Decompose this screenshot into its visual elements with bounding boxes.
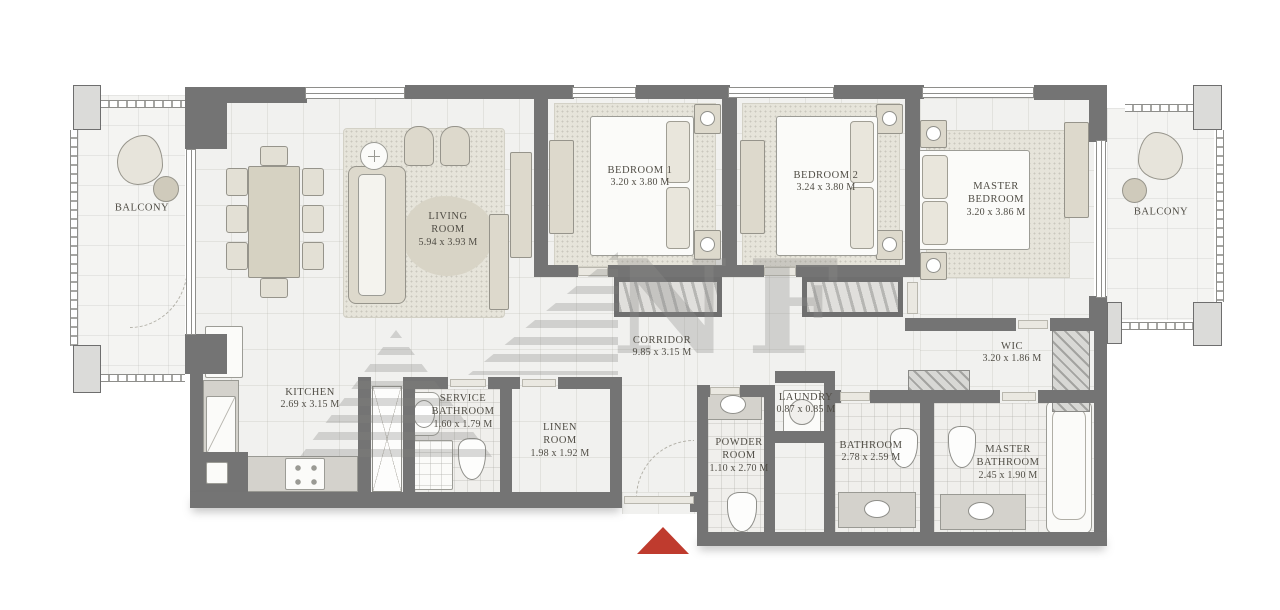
- room-dimensions: 1.60 x 1.79 M: [434, 419, 493, 432]
- wall-segment: [920, 390, 934, 532]
- room-label-living-room: LIVING ROOM 5.94 x 3.93 M: [419, 210, 478, 250]
- tv-cabinet: [510, 152, 532, 258]
- console-cabinet: [489, 214, 509, 310]
- lamp-icon: [882, 111, 897, 126]
- dining-table: [248, 166, 300, 278]
- wardrobe: [549, 140, 574, 234]
- balcony-railing: [1216, 130, 1224, 302]
- room-label-balcony-right: BALCONY: [1134, 205, 1188, 218]
- wall-segment: [185, 87, 307, 103]
- window: [728, 87, 834, 98]
- room-dimensions: 3.20 x 3.80 M: [611, 177, 670, 190]
- wall-segment: [1094, 324, 1107, 546]
- lounge-chair: [117, 135, 163, 185]
- room-label-master-bedroom: MASTER BEDROOM 3.20 x 3.86 M: [965, 180, 1027, 220]
- room-name: KITCHEN: [285, 386, 335, 399]
- room-dimensions: 2.78 x 2.59 M: [842, 452, 901, 465]
- room-name: MASTER BEDROOM: [965, 180, 1027, 207]
- lamp-icon: [882, 237, 897, 252]
- room-label-laundry: LAUNDRY 0.87 x 0.85 M: [777, 391, 836, 417]
- window: [305, 87, 405, 99]
- wall-segment: [697, 385, 710, 397]
- floor-plan: NF BALCONY LIVING ROOM 5.94 x 3.93 M BED…: [0, 0, 1280, 610]
- bathtub-inner: [1052, 408, 1086, 520]
- room-name: LAUNDRY: [779, 391, 833, 404]
- wall-segment: [697, 385, 708, 532]
- wall-segment: [534, 97, 548, 277]
- balcony-railing: [1122, 322, 1193, 330]
- room-dimensions: 1.98 x 1.92 M: [531, 448, 590, 461]
- wall-segment: [934, 390, 1000, 403]
- door-threshold: [1002, 392, 1036, 401]
- room-label-master-bathroom: MASTER BATHROOM 2.45 x 1.90 M: [973, 443, 1043, 483]
- room-name: BEDROOM 1: [605, 164, 675, 177]
- structural-column: [73, 345, 101, 393]
- room-label-linen-room: LINEN ROOM 1.98 x 1.92 M: [531, 421, 590, 461]
- lamp-icon: [926, 126, 941, 141]
- wall-shaft: [206, 462, 228, 484]
- table-lamp-icon: [368, 150, 380, 162]
- stove: [285, 458, 325, 490]
- balcony-railing: [101, 100, 185, 108]
- wall-segment: [636, 85, 730, 99]
- wall-segment: [500, 377, 512, 492]
- room-name: WIC: [1001, 340, 1023, 353]
- side-table: [1122, 178, 1147, 203]
- wardrobe: [740, 140, 765, 234]
- room-dimensions: 3.24 x 3.80 M: [797, 182, 856, 195]
- sofa-cushions: [358, 174, 386, 296]
- dining-chair: [302, 168, 324, 196]
- sink-basin: [720, 395, 746, 414]
- room-name: MASTER BATHROOM: [973, 443, 1043, 470]
- dining-chair: [260, 278, 288, 298]
- room-name: LINEN ROOM: [537, 421, 583, 448]
- wall-segment: [534, 265, 578, 277]
- room-label-bedroom-2: BEDROOM 2 3.24 x 3.80 M: [791, 169, 861, 195]
- pillow: [922, 155, 948, 199]
- dining-chair: [226, 242, 248, 270]
- wall-segment: [697, 532, 1107, 546]
- sink-basin: [864, 500, 890, 518]
- armchair: [440, 126, 470, 166]
- room-name: BALCONY: [115, 201, 169, 214]
- door-threshold: [522, 379, 556, 387]
- entrance-threshold: [624, 496, 694, 504]
- room-name: BATHROOM: [840, 439, 903, 452]
- dining-chair: [302, 205, 324, 233]
- room-dimensions: 1.10 x 2.70 M: [710, 463, 769, 476]
- room-label-service-bathroom: SERVICE BATHROOM 1.60 x 1.79 M: [428, 392, 498, 432]
- room-name: BALCONY: [1134, 205, 1188, 218]
- dining-chair: [226, 168, 248, 196]
- door-threshold: [907, 282, 918, 314]
- room-label-powder-room: POWDER ROOM 1.10 x 2.70 M: [710, 436, 769, 476]
- wall-segment: [870, 390, 920, 403]
- dining-chair: [260, 146, 288, 166]
- wall-segment: [775, 431, 824, 443]
- room-dimensions: 2.45 x 1.90 M: [979, 470, 1038, 483]
- room-dimensions: 0.87 x 0.85 M: [777, 404, 836, 417]
- wall-segment: [1038, 390, 1094, 403]
- armchair: [404, 126, 434, 166]
- door-threshold: [1018, 320, 1048, 329]
- side-table: [153, 176, 179, 202]
- pillow: [922, 201, 948, 245]
- lamp-icon: [926, 258, 941, 273]
- room-label-corridor: CORRIDOR 9.85 x 3.15 M: [633, 334, 692, 360]
- structural-column: [1107, 302, 1122, 344]
- wall-segment: [190, 492, 622, 508]
- wall-segment: [488, 377, 520, 389]
- room-label-wic: WIC 3.20 x 1.86 M: [983, 340, 1042, 366]
- sink-basin: [968, 502, 994, 520]
- room-name: CORRIDOR: [633, 334, 691, 347]
- tall-cabinet: [1064, 122, 1089, 218]
- room-dimensions: 2.69 x 3.15 M: [281, 399, 340, 412]
- structural-column: [1193, 302, 1222, 346]
- room-label-bathroom: BATHROOM 2.78 x 2.59 M: [840, 439, 903, 465]
- wall-segment: [610, 377, 622, 492]
- room-dimensions: 9.85 x 3.15 M: [633, 347, 692, 360]
- room-dimensions: 3.20 x 1.86 M: [983, 353, 1042, 366]
- room-label-kitchen: KITCHEN 2.69 x 3.15 M: [281, 386, 340, 412]
- lamp-icon: [700, 111, 715, 126]
- wall-segment: [1050, 318, 1094, 331]
- wall-segment: [905, 97, 920, 277]
- dining-chair: [302, 242, 324, 270]
- balcony-railing: [101, 374, 185, 382]
- window: [186, 149, 196, 335]
- room-name: POWDER ROOM: [711, 436, 767, 463]
- entrance-marker: [637, 527, 689, 554]
- room-label-bedroom-1: BEDROOM 1 3.20 x 3.80 M: [605, 164, 675, 190]
- room-name: SERVICE BATHROOM: [428, 392, 498, 419]
- balcony-railing: [1125, 104, 1193, 112]
- kitchen-sink: [206, 396, 236, 454]
- room-label-balcony-left: BALCONY: [115, 201, 169, 214]
- wall-segment: [405, 85, 574, 99]
- structural-column: [1193, 85, 1222, 130]
- door-threshold: [710, 387, 740, 395]
- dining-chair: [226, 205, 248, 233]
- window: [922, 87, 1034, 98]
- window: [572, 87, 636, 98]
- wall-segment: [1089, 98, 1107, 142]
- balcony-railing: [70, 130, 78, 346]
- structural-column: [73, 85, 101, 130]
- room-name: BEDROOM 2: [791, 169, 861, 182]
- window: [1096, 140, 1106, 298]
- door-threshold: [840, 392, 870, 401]
- door-threshold: [450, 379, 486, 387]
- room-name: LIVING ROOM: [423, 210, 473, 237]
- wall-segment: [905, 318, 1016, 331]
- room-dimensions: 3.20 x 3.86 M: [967, 207, 1026, 220]
- room-dimensions: 5.94 x 3.93 M: [419, 237, 478, 250]
